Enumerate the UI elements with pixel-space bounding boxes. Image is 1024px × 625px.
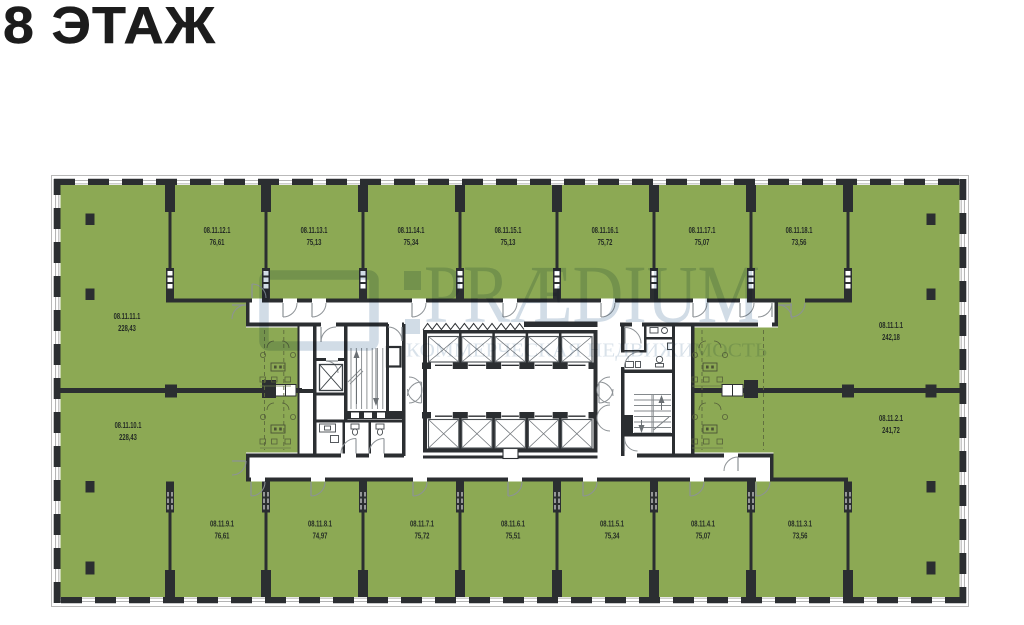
svg-text:75,34: 75,34	[605, 532, 620, 541]
svg-text:76,61: 76,61	[215, 532, 230, 541]
svg-text:08.11.13.1: 08.11.13.1	[301, 226, 328, 235]
svg-text:КОММЕРЧЕСКАЯ НЕДВИЖИМОСТЬ: КОММЕРЧЕСКАЯ НЕДВИЖИМОСТЬ	[406, 340, 767, 362]
svg-text:08.11.4.1: 08.11.4.1	[691, 520, 715, 529]
svg-text:08.11.18.1: 08.11.18.1	[786, 226, 813, 235]
svg-text:08.11.15.1: 08.11.15.1	[495, 226, 522, 235]
svg-text:08.11.6.1: 08.11.6.1	[501, 520, 525, 529]
svg-text:75,07: 75,07	[696, 532, 711, 541]
svg-text:08.11.2.1: 08.11.2.1	[879, 414, 903, 423]
svg-text:75,72: 75,72	[598, 238, 613, 247]
svg-text:75,13: 75,13	[501, 238, 516, 247]
svg-text:08.11.8.1: 08.11.8.1	[308, 520, 332, 529]
svg-text:08.11.7.1: 08.11.7.1	[410, 520, 434, 529]
svg-text:08.11.11.1: 08.11.11.1	[114, 312, 141, 321]
svg-text:08.11.3.1: 08.11.3.1	[788, 520, 812, 529]
svg-text:73,56: 73,56	[793, 532, 808, 541]
svg-text:08.11.9.1: 08.11.9.1	[210, 520, 234, 529]
svg-text:76,61: 76,61	[210, 238, 225, 247]
svg-text:08.11.5.1: 08.11.5.1	[600, 520, 624, 529]
svg-text:73,56: 73,56	[792, 238, 807, 247]
svg-text:8 ЭТАЖ: 8 ЭТАЖ	[3, 0, 216, 55]
svg-text:08.11.14.1: 08.11.14.1	[398, 226, 425, 235]
svg-text:08.11.17.1: 08.11.17.1	[689, 226, 716, 235]
svg-text:08.11.1.1: 08.11.1.1	[879, 321, 903, 330]
svg-text:75,51: 75,51	[506, 532, 521, 541]
svg-text:75,34: 75,34	[404, 238, 419, 247]
svg-text:75,07: 75,07	[695, 238, 710, 247]
svg-text:228,43: 228,43	[118, 324, 136, 333]
svg-text:08.11.16.1: 08.11.16.1	[592, 226, 619, 235]
svg-text:08.11.10.1: 08.11.10.1	[115, 421, 142, 430]
svg-text:75,72: 75,72	[415, 532, 430, 541]
svg-text:75,13: 75,13	[307, 238, 322, 247]
svg-text:228,43: 228,43	[119, 433, 137, 442]
svg-text:74,97: 74,97	[313, 532, 328, 541]
svg-text:241,72: 241,72	[882, 426, 900, 435]
svg-text:242,18: 242,18	[882, 333, 900, 342]
svg-text:08.11.12.1: 08.11.12.1	[204, 226, 231, 235]
svg-text:PRÆDIUM: PRÆDIUM	[424, 248, 760, 340]
